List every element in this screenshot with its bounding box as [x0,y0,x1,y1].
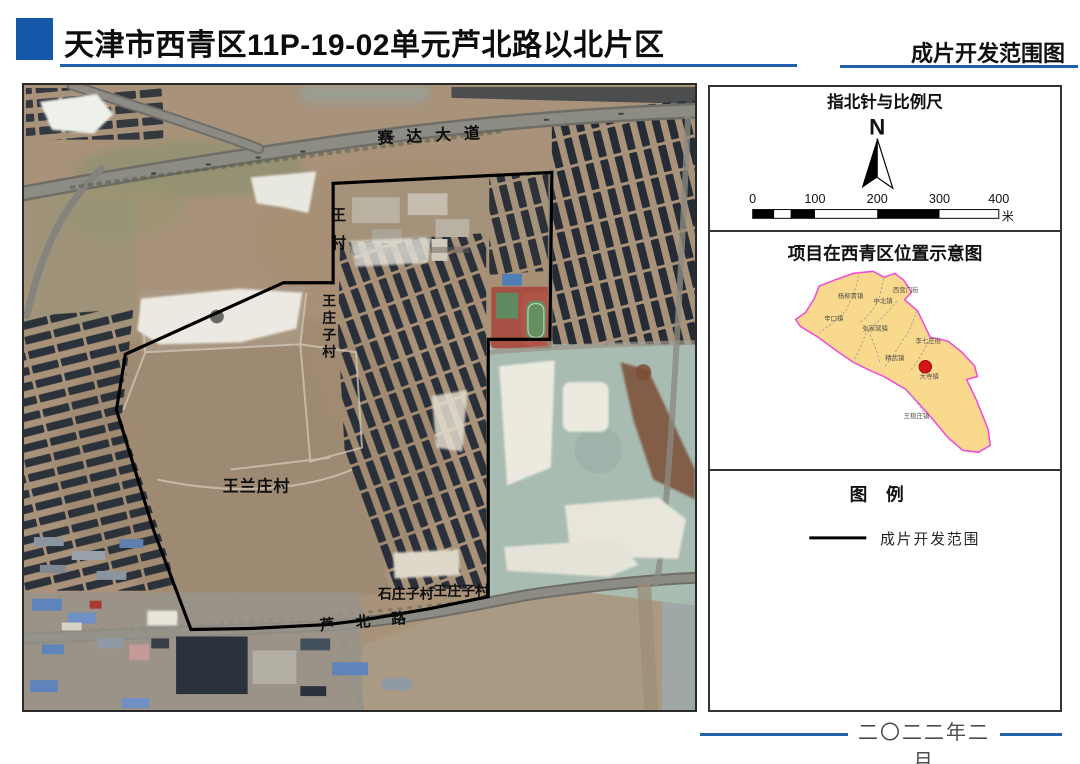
project-location-marker [919,360,932,373]
legend-panel: 图 例 成片开发范围 [708,469,1062,712]
town-liqizhuang: 李七庄街 [916,336,942,345]
wangzhuangzi-label: 王庄子村 [434,583,490,599]
sheet-type-underline [840,65,1078,68]
wanglanzhuang-label: 王兰庄村 [223,476,291,495]
scale-tick-labels: 0 100 200 300 400 [749,192,1009,206]
wangzhuangzi-vertical-label: 王 庄 子 村 [322,293,336,360]
legend-graphic: 图 例 成片开发范围 [710,471,1060,710]
town-zhangjiawo: 张家窝镇 [862,323,888,332]
scale-unit: 米 [1002,209,1014,223]
shizhuangzi-label: 石庄子村 [377,586,434,602]
town-wangwenzhuang: 王稳庄镇 [904,411,930,420]
town-xinkou: 辛口镇 [824,314,844,323]
title-accent-square [16,18,53,60]
title-underline [60,64,797,67]
svg-text:村: 村 [322,343,336,359]
satellite-map: 赛达大道 芦北路 王 村 王 庄 子 村 王兰庄村 石庄子村 王庄子村 [24,85,695,710]
north-letter: N [869,115,885,140]
svg-text:王: 王 [322,293,336,309]
scale-tick-100: 100 [804,192,825,206]
sheet-type-title: 成片开发范围图 [840,36,1065,68]
satellite-map-frame: 赛达大道 芦北路 王 村 王 庄 子 村 王兰庄村 石庄子村 王庄子村 [22,83,697,712]
town-jingwu: 精武镇 [885,353,905,362]
sheet: 天津市西青区11P-19-02单元芦北路以北片区 成片开发范围图 [0,0,1080,764]
scale-bar [753,210,999,219]
district-minimap: 项目在西青区位置示意图 西营门街 杨柳青镇 中北镇 辛口镇 张家窝镇 李七庄街 … [710,232,1060,469]
north-scale-title: 指北针与比例尺 [827,91,943,111]
scale-tick-200: 200 [867,192,888,206]
footer-line-right [1000,733,1062,736]
location-panel-title: 项目在西青区位置示意图 [788,243,983,264]
scale-tick-300: 300 [929,192,950,206]
location-panel: 项目在西青区位置示意图 西营门街 杨柳青镇 中北镇 辛口镇 张家窝镇 李七庄街 … [708,230,1062,471]
legend-item-label: 成片开发范围 [880,531,980,548]
town-zhongbei: 中北镇 [873,296,893,305]
scale-tick-400: 400 [988,192,1009,206]
svg-text:王: 王 [331,207,346,224]
north-scale-graphic: 指北针与比例尺 N 0 100 200 300 400 米 [710,87,1060,230]
svg-text:庄: 庄 [322,309,336,325]
north-scale-panel: 指北针与比例尺 N 0 100 200 300 400 米 [708,85,1062,232]
north-arrow-icon [862,139,893,189]
footer-date: 二〇二二年二月 [850,716,998,764]
svg-text:村: 村 [331,234,346,252]
scale-tick-0: 0 [749,192,756,206]
town-xiyingmen: 西营门街 [893,285,919,294]
town-yangliuqing: 杨柳青镇 [838,291,864,300]
page-title: 天津市西青区11P-19-02单元芦北路以北片区 [64,20,664,64]
town-dasi: 大寺镇 [920,372,940,381]
legend-title: 图 例 [850,484,911,505]
footer-line-left [700,733,848,736]
svg-text:子: 子 [322,326,336,342]
